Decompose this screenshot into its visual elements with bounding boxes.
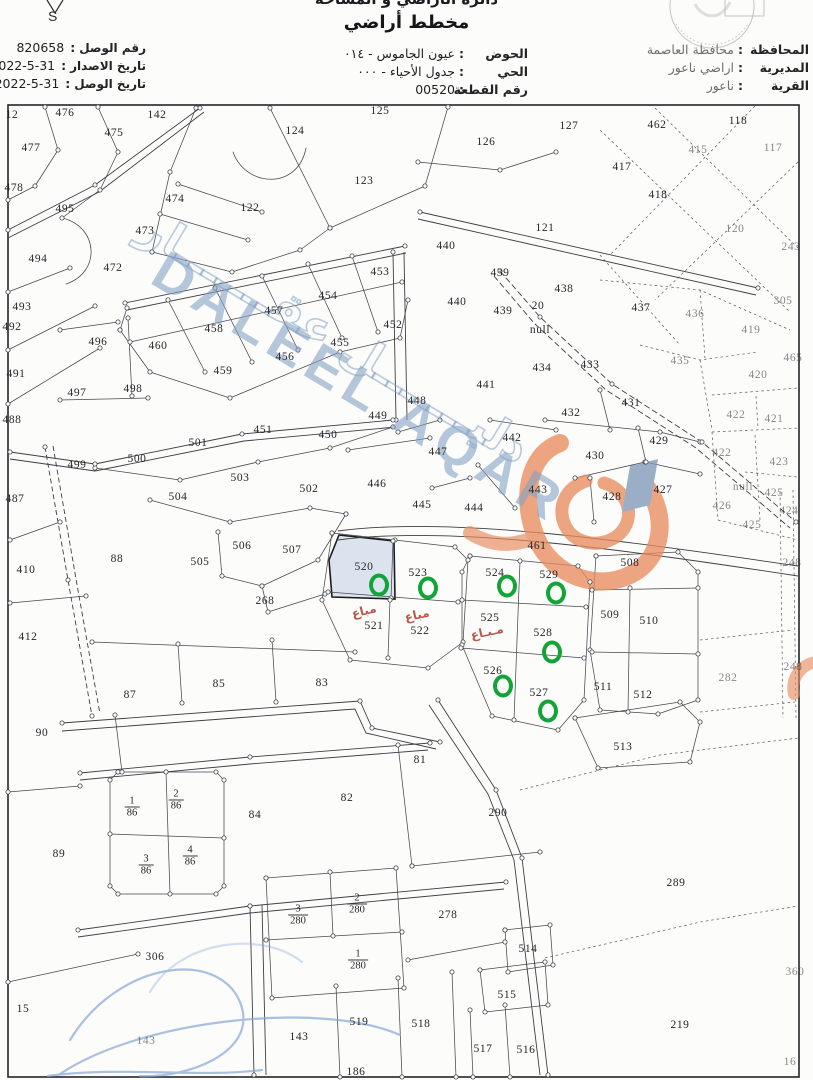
plot-label-289: 289 xyxy=(666,877,685,889)
plot-label-83: 83 xyxy=(316,677,329,689)
plot-label-418: 418 xyxy=(648,189,667,201)
plot-label-509: 509 xyxy=(600,609,619,621)
plot-label-248: 248 xyxy=(783,661,802,673)
plot-label-487: 487 xyxy=(5,493,24,505)
plot-label-518: 518 xyxy=(411,1018,430,1030)
plot-label-12: 12 xyxy=(6,109,19,121)
plot-label-447: 447 xyxy=(428,446,447,458)
plot-label-219: 219 xyxy=(670,1019,689,1031)
plot-label-527: 527 xyxy=(529,687,548,699)
highlight-circle-icon xyxy=(493,675,513,698)
plot-label-499: 499 xyxy=(67,459,86,471)
fraction-label-1-86: 186 xyxy=(125,795,140,818)
plot-label-522: 522 xyxy=(410,625,429,637)
plot-label-514: 514 xyxy=(518,943,537,955)
plot-label-290: 290 xyxy=(488,807,507,819)
plot-label-502: 502 xyxy=(299,483,318,495)
plot-label-473: 473 xyxy=(135,225,154,237)
plot-label-82: 82 xyxy=(341,792,354,804)
plot-label-432: 432 xyxy=(561,407,580,419)
plot-label-429: 429 xyxy=(649,435,668,447)
plot-label-452: 452 xyxy=(383,319,402,331)
plot-label-505: 505 xyxy=(190,556,209,568)
plot-label-88: 88 xyxy=(111,553,124,565)
land-plan-document: { "header": { "department_line": "دائرة … xyxy=(0,0,813,1080)
plot-label-529: 529 xyxy=(539,569,558,581)
plot-label-89: 89 xyxy=(53,848,66,860)
fraction-label-1-280: 1280 xyxy=(348,948,368,971)
plot-label-426: 426 xyxy=(712,500,731,512)
plot-label-515: 515 xyxy=(497,989,516,1001)
official-stamp-icon xyxy=(670,0,764,48)
plot-label-438: 438 xyxy=(554,283,573,295)
plot-label-425: 425 xyxy=(764,487,783,499)
highlight-circle-icon xyxy=(542,641,562,664)
plot-label-436: 436 xyxy=(685,308,704,320)
plot-label-278: 278 xyxy=(438,909,457,921)
plot-label-248: 248 xyxy=(782,557,801,569)
plot-label-444: 444 xyxy=(464,502,483,514)
plot-label-472: 472 xyxy=(103,262,122,274)
fraction-label-3-86: 386 xyxy=(139,853,154,876)
plot-label-440: 440 xyxy=(436,240,455,252)
plot-label-493: 493 xyxy=(12,301,31,313)
plot-label-305: 305 xyxy=(773,295,792,307)
plot-label-425: 425 xyxy=(742,519,761,531)
plot-label-142: 142 xyxy=(147,109,166,121)
plot-label-20: 20 xyxy=(532,300,545,312)
cadastral-map xyxy=(0,0,813,1080)
plot-label-430: 430 xyxy=(585,450,604,462)
plot-label-15: 15 xyxy=(17,1003,30,1015)
plot-label-410: 410 xyxy=(16,564,35,576)
plot-label-125: 125 xyxy=(370,105,389,117)
plot-label-455: 455 xyxy=(330,337,349,349)
plot-label-457: 457 xyxy=(264,305,283,317)
plot-label-143: 143 xyxy=(136,1035,155,1047)
plot-label-494: 494 xyxy=(28,253,47,265)
plot-label-422: 422 xyxy=(726,409,745,421)
plot-label-477: 477 xyxy=(21,142,40,154)
plot-label-118: 118 xyxy=(729,115,748,127)
plot-label-508: 508 xyxy=(620,557,639,569)
plot-label-474: 474 xyxy=(165,193,184,205)
plot-label-488: 488 xyxy=(2,414,21,426)
plot-label-439: 439 xyxy=(493,305,512,317)
plot-label-437: 437 xyxy=(631,302,650,314)
highlight-circle-icon xyxy=(369,574,389,597)
plot-label-516: 516 xyxy=(516,1044,535,1056)
plot-label-282: 282 xyxy=(718,672,737,684)
plot-label-85: 85 xyxy=(213,678,226,690)
plot-label-503: 503 xyxy=(230,472,249,484)
plot-label-null: null xyxy=(733,481,753,493)
highlight-circle-icon xyxy=(497,575,517,598)
plot-label-87: 87 xyxy=(124,689,137,701)
plot-label-510: 510 xyxy=(639,615,658,627)
plot-label-143: 143 xyxy=(289,1031,308,1043)
plot-label-440: 440 xyxy=(447,296,466,308)
plot-label-127: 127 xyxy=(559,120,578,132)
plot-label-415: 415 xyxy=(688,144,707,156)
plot-label-495: 495 xyxy=(55,203,74,215)
plot-label-90: 90 xyxy=(36,727,49,739)
plot-label-124: 124 xyxy=(285,125,304,137)
plot-label-427: 427 xyxy=(653,484,672,496)
plot-label-492: 492 xyxy=(2,321,21,333)
plot-label-424: 424 xyxy=(779,505,798,517)
plot-label-126: 126 xyxy=(476,136,495,148)
survey-vertex-dots xyxy=(6,105,798,1079)
plot-label-268: 268 xyxy=(255,595,274,607)
plot-label-528: 528 xyxy=(533,627,552,639)
plot-label-117: 117 xyxy=(764,142,783,154)
plot-label-16: 16 xyxy=(784,1056,797,1068)
plot-label-476: 476 xyxy=(55,107,74,119)
plot-label-431: 431 xyxy=(621,397,640,409)
highlight-circle-icon xyxy=(538,700,558,723)
plot-label-501: 501 xyxy=(188,437,207,449)
plot-label-512: 512 xyxy=(633,689,652,701)
plot-label-84: 84 xyxy=(249,809,262,821)
plot-label-428: 428 xyxy=(602,491,621,503)
plot-label-506: 506 xyxy=(232,540,251,552)
plot-label-478: 478 xyxy=(4,182,23,194)
plot-label-421: 421 xyxy=(764,413,783,425)
compass-arrow-icon xyxy=(47,0,63,13)
plot-label-453: 453 xyxy=(370,266,389,278)
plot-label-null: null xyxy=(530,324,550,336)
plot-label-423: 423 xyxy=(769,456,788,468)
plot-label-186: 186 xyxy=(346,1066,365,1078)
plot-label-491: 491 xyxy=(6,368,25,380)
plot-label-498: 498 xyxy=(123,383,142,395)
plot-label-454: 454 xyxy=(318,290,337,302)
plot-label-81: 81 xyxy=(414,754,427,766)
plot-label-460: 460 xyxy=(148,340,167,352)
plot-label-433: 433 xyxy=(580,359,599,371)
plot-label-500: 500 xyxy=(127,453,146,465)
plot-label-517: 517 xyxy=(473,1043,492,1055)
plot-label-434: 434 xyxy=(532,362,551,374)
plot-label-441: 441 xyxy=(476,379,495,391)
plot-label-450: 450 xyxy=(318,429,337,441)
plot-label-461: 461 xyxy=(527,540,546,552)
plot-label-443: 443 xyxy=(528,484,547,496)
plot-label-521: 521 xyxy=(364,620,383,632)
plot-label-465: 465 xyxy=(783,352,802,364)
plot-label-412: 412 xyxy=(18,631,37,643)
fraction-label-2-86: 286 xyxy=(169,788,184,811)
plot-label-446: 446 xyxy=(367,478,386,490)
plot-label-462: 462 xyxy=(647,119,666,131)
plot-label-122: 122 xyxy=(240,202,259,214)
plot-label-449: 449 xyxy=(368,410,387,422)
plot-label-243: 243 xyxy=(781,241,800,253)
plot-label-475: 475 xyxy=(104,127,123,139)
plot-label-496: 496 xyxy=(88,336,107,348)
plot-label-422: 422 xyxy=(712,447,731,459)
highlight-circle-icon xyxy=(418,577,438,600)
plot-label-419: 419 xyxy=(741,324,760,336)
fraction-label-2-280: 2280 xyxy=(347,892,367,915)
plot-label-420: 420 xyxy=(748,369,767,381)
plot-label-439: 439 xyxy=(490,267,509,279)
plot-label-417: 417 xyxy=(612,161,631,173)
plot-label-306: 306 xyxy=(145,951,164,963)
plot-label-504: 504 xyxy=(168,491,187,503)
plot-label-121: 121 xyxy=(535,222,554,234)
plot-label-435: 435 xyxy=(670,355,689,367)
plot-label-507: 507 xyxy=(282,544,301,556)
plot-label-442: 442 xyxy=(502,432,521,444)
plot-label-123: 123 xyxy=(354,175,373,187)
plot-label-511: 511 xyxy=(594,681,613,693)
plot-label-459: 459 xyxy=(213,365,232,377)
fraction-label-3-280: 3280 xyxy=(288,903,308,926)
plot-label-445: 445 xyxy=(412,499,431,511)
plot-label-458: 458 xyxy=(204,323,223,335)
plot-label-360: 360 xyxy=(785,966,804,978)
plot-label-451: 451 xyxy=(253,424,272,436)
plot-label-448: 448 xyxy=(407,395,426,407)
plot-label-120: 120 xyxy=(725,223,744,235)
plot-label-456: 456 xyxy=(275,351,294,363)
plot-label-519: 519 xyxy=(349,1016,368,1028)
plot-label-520: 520 xyxy=(354,561,373,573)
highlight-circle-icon xyxy=(546,582,566,605)
plot-label-513: 513 xyxy=(613,741,632,753)
fraction-label-4-86: 486 xyxy=(183,844,198,867)
plot-label-497: 497 xyxy=(67,387,86,399)
